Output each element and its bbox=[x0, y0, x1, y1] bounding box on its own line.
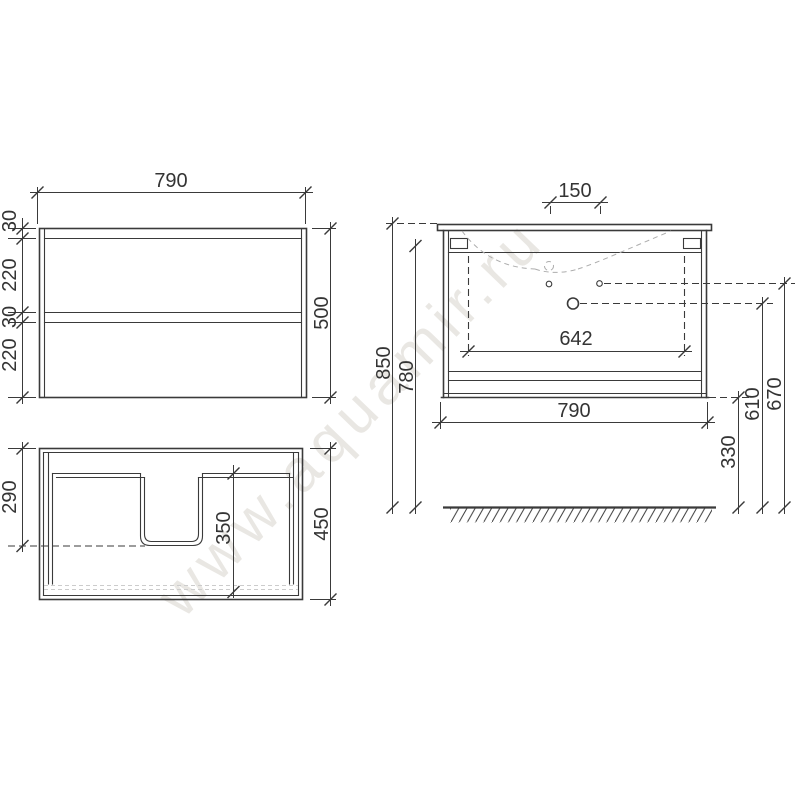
front-view-dimensions: 790 30 220 30 220 500 bbox=[0, 170, 337, 404]
dim-top-cutout-offset: 290 bbox=[0, 442, 36, 552]
dim-floor-clearance: 330 bbox=[718, 391, 745, 514]
watermark-text: www.aquamir.ru bbox=[143, 205, 556, 630]
dim-label-front-width: 790 bbox=[154, 170, 187, 192]
dim-label-top-depth: 450 bbox=[311, 507, 333, 540]
dim-label-span: 642 bbox=[559, 328, 592, 350]
dim-front-height: 500 bbox=[311, 222, 337, 404]
dim-span: 642 bbox=[460, 328, 692, 358]
countertop bbox=[438, 225, 712, 231]
dim-side-width: 790 bbox=[432, 400, 715, 429]
left-mounting-bracket bbox=[451, 239, 468, 249]
dim-label-side-width: 790 bbox=[557, 400, 590, 422]
u-cutout-inner bbox=[145, 478, 199, 542]
floor bbox=[443, 508, 716, 523]
dim-label-front-seg-3: 220 bbox=[0, 338, 21, 371]
dim-label-front-seg-2: 30 bbox=[0, 306, 21, 328]
dim-label-floor-clearance: 330 bbox=[718, 435, 740, 468]
dim-front-width: 790 bbox=[30, 170, 313, 224]
dim-label-body-height: 780 bbox=[396, 360, 418, 393]
dim-label-overflow-height: 670 bbox=[764, 377, 786, 410]
front-view bbox=[40, 229, 307, 398]
overflow-hole-right bbox=[597, 281, 603, 287]
vanity-dimension-drawing: www.aquamir.ru 790 bbox=[0, 0, 800, 800]
dim-label-total-height: 850 bbox=[373, 346, 395, 379]
dim-total-height: 850 bbox=[373, 217, 399, 514]
overflow-hole-left bbox=[546, 281, 552, 287]
dim-front-segments: 30 220 30 220 bbox=[0, 210, 36, 404]
dim-overflow-height: 670 bbox=[764, 277, 791, 514]
technical-drawing-page: www.aquamir.ru 790 bbox=[0, 0, 800, 800]
dim-holes-spacing: 150 bbox=[542, 180, 608, 214]
right-mounting-bracket bbox=[684, 239, 701, 249]
dim-label-front-seg-1: 220 bbox=[0, 258, 21, 291]
dim-label-top-cutout-offset: 290 bbox=[0, 480, 21, 513]
dim-label-front-height: 500 bbox=[311, 296, 333, 329]
dim-label-top-drawer-inner: 350 bbox=[213, 511, 235, 544]
floor-hatching bbox=[450, 508, 712, 523]
dim-label-faucet-height: 610 bbox=[742, 387, 764, 420]
dim-label-front-seg-0: 30 bbox=[0, 210, 21, 232]
dim-label-holes-spacing: 150 bbox=[558, 180, 591, 202]
dim-body-height: 780 bbox=[396, 239, 422, 514]
faucet-hole bbox=[568, 298, 579, 309]
